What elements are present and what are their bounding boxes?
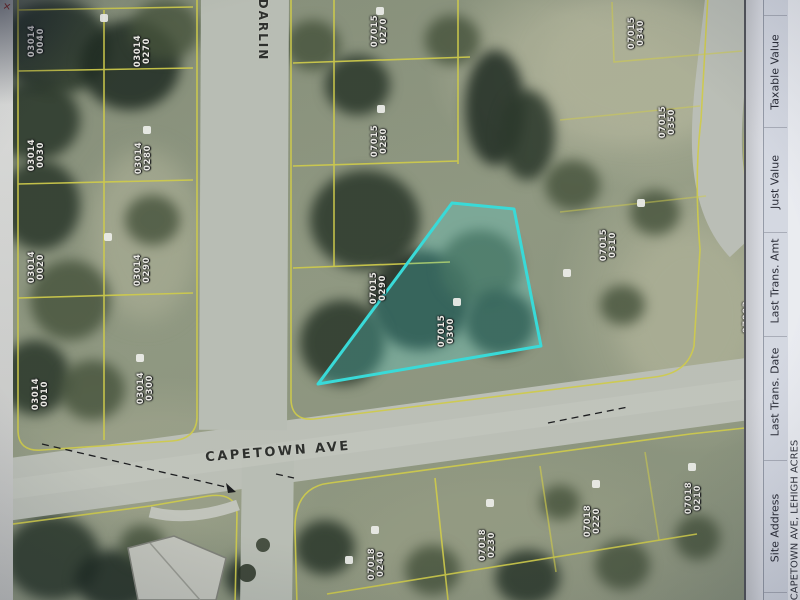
- parcel-label: 070150290: [370, 272, 388, 305]
- parcel-line: [435, 478, 448, 600]
- structure-icon: [637, 199, 645, 207]
- parcel-label: 030140300: [137, 372, 155, 405]
- road-center: [0, 388, 745, 492]
- red-marker-icon: ✕: [2, 1, 14, 11]
- site-address-value[interactable]: CAPETOWN AVE, LEHIGH ACRES: [790, 440, 800, 600]
- parcel-label: 030140290: [134, 254, 152, 287]
- south-road: [266, 455, 268, 600]
- structure-icon: [136, 354, 144, 362]
- palm-tree: [256, 538, 270, 552]
- column-divider: [764, 232, 787, 233]
- parcel-label: 070180230: [479, 529, 497, 562]
- parcel-label: 070150270: [371, 15, 389, 48]
- driveway: [150, 505, 238, 516]
- house-roof: [128, 536, 226, 600]
- parcel-label: 030140010: [32, 378, 50, 411]
- highlighted-parcel-07015-0300[interactable]: [318, 203, 541, 384]
- parcel-line: [560, 196, 706, 212]
- parcel-line: [18, 68, 193, 71]
- parcel-label: 070150300: [438, 315, 456, 348]
- photo-edge-band: [0, 0, 13, 600]
- column-header-last-trans-date[interactable]: Last Trans. Date: [769, 348, 782, 437]
- structure-icon: [100, 14, 108, 22]
- column-header-site-address[interactable]: Site Address: [769, 494, 782, 562]
- column-divider: [764, 336, 787, 337]
- structure-icon: [453, 298, 461, 306]
- parcel-label: 070150340: [628, 17, 646, 50]
- structure-icon: [143, 126, 151, 134]
- column-divider: [764, 15, 787, 16]
- parcel-line: [540, 466, 556, 572]
- parcel-label: 030140280: [135, 142, 153, 175]
- screen-photo: CAPETOWN AVE DARLIN 03014004003014027003…: [0, 0, 800, 600]
- parcel-label: 070180210: [685, 482, 703, 515]
- parcel-label: 030140270: [134, 35, 152, 68]
- table-strip: Site AddressLast Trans. DateLast Trans. …: [744, 0, 800, 600]
- table-margin: [746, 0, 763, 600]
- aerial-map[interactable]: CAPETOWN AVE DARLIN 03014004003014027003…: [0, 0, 745, 600]
- parcel-line: [645, 452, 659, 540]
- parcel-label: 070150350: [659, 106, 677, 139]
- column-divider: [764, 460, 787, 461]
- structure-icon: [688, 463, 696, 471]
- parcel-line: [18, 7, 193, 10]
- parcel-label: 070180220: [584, 505, 602, 538]
- parcel-line: [18, 293, 193, 298]
- parcel-label: 070180240: [368, 548, 386, 581]
- parcel-line: [293, 57, 470, 63]
- parcel-label: 070150310: [600, 229, 618, 262]
- parcel-line: [560, 106, 700, 120]
- column-header-last-trans-amt[interactable]: Last Trans. Amt: [769, 238, 782, 323]
- palm-tree: [238, 564, 256, 582]
- column-divider: [764, 127, 787, 128]
- column-divider: [764, 592, 787, 593]
- parcel-label: 030140040: [28, 25, 46, 58]
- parcel-line: [18, 180, 193, 184]
- column-header-taxable-value[interactable]: Taxable Value: [769, 34, 782, 109]
- structure-icon: [563, 269, 571, 277]
- east-road: [717, 0, 745, 240]
- structure-icon: [371, 526, 379, 534]
- structure-icon: [377, 105, 385, 113]
- parcel-line: [293, 161, 458, 166]
- structure-icon: [486, 499, 494, 507]
- structure-icon: [104, 233, 112, 241]
- structure-icon: [592, 480, 600, 488]
- structure-icon: [345, 556, 353, 564]
- column-header-just-value[interactable]: Just Value: [769, 155, 782, 209]
- parcel-label: 030140020: [28, 251, 46, 284]
- street-label-darling: DARLIN: [256, 0, 270, 61]
- parcel-label: 070150280: [371, 125, 389, 158]
- darling-road: [243, 0, 245, 430]
- parcel-label: 030140030: [28, 139, 46, 172]
